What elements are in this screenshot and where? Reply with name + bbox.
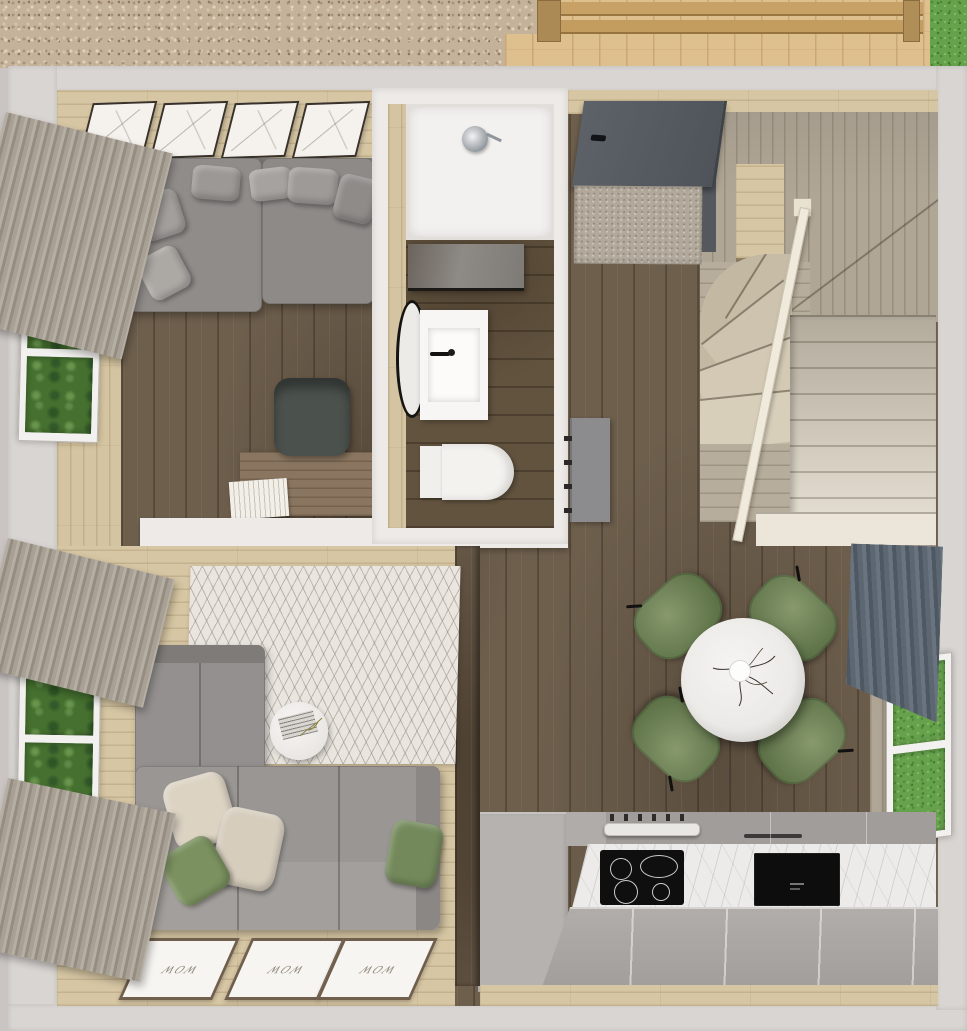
counter-seam: [770, 812, 771, 846]
black-sink-unit: [754, 853, 840, 906]
cabinet-fronts: [540, 907, 938, 993]
gravel-area: [0, 0, 552, 68]
pergola-beam: [545, 20, 923, 34]
floor-mat-label: WOW: [156, 963, 201, 975]
floor-mat-label: WOW: [262, 963, 307, 975]
outer-wall-right: [936, 66, 967, 1010]
door-hinge: [564, 508, 572, 513]
stair-bottom-step: [756, 512, 936, 546]
shower-tray: [406, 104, 554, 240]
shower-glass-panel: [408, 244, 524, 291]
sink-faucet-bar: [744, 834, 802, 838]
counter-seam: [866, 812, 867, 846]
sink-faucet-knob: [448, 349, 455, 356]
outer-wall-bottom: [8, 1004, 967, 1031]
door-hinge: [564, 460, 572, 465]
vase: [729, 660, 751, 682]
shower-head-icon: [462, 126, 488, 152]
induction-cooktop: [600, 850, 684, 905]
burner: [614, 880, 638, 904]
pergola-beam: [545, 2, 923, 16]
display-dashes: [790, 888, 800, 890]
sink-faucet: [430, 352, 450, 356]
living-sofa-chaise: [135, 645, 265, 778]
burner: [652, 883, 670, 901]
stair-ledge: [736, 164, 784, 262]
bathroom-door: [570, 418, 610, 522]
cushion-seam: [199, 663, 201, 778]
leaf-decor: [298, 716, 324, 738]
floorplan-scene: WOW WOW WOW: [0, 0, 967, 1031]
toilet-bowl: [442, 444, 514, 500]
oven-control-knobs: [610, 814, 688, 821]
deck-post: [903, 0, 920, 42]
sink-basin: [428, 328, 480, 402]
office-chair: [274, 378, 350, 456]
winder-step: [700, 388, 792, 444]
door-mat: [574, 185, 703, 264]
cushion-seam: [338, 766, 340, 930]
door-handle: [590, 134, 606, 141]
display-dashes: [790, 883, 804, 885]
door-hinge: [564, 436, 572, 441]
dining-table: [681, 618, 805, 742]
side-table: [270, 702, 328, 760]
staircase: [700, 112, 938, 546]
floor-mat-label: WOW: [354, 963, 399, 975]
pillow: [191, 164, 242, 202]
book-stack: [229, 478, 290, 520]
lawn-patch: [930, 0, 967, 66]
oven-handle: [604, 823, 700, 836]
entry-door: [572, 101, 727, 187]
pillow: [287, 166, 339, 205]
deck-post: [537, 0, 561, 42]
kitchen-floor-strip: [480, 985, 938, 1006]
burner: [610, 858, 632, 880]
burner: [640, 855, 678, 878]
window-view-trees: [25, 356, 93, 434]
door-hinge: [564, 484, 572, 489]
